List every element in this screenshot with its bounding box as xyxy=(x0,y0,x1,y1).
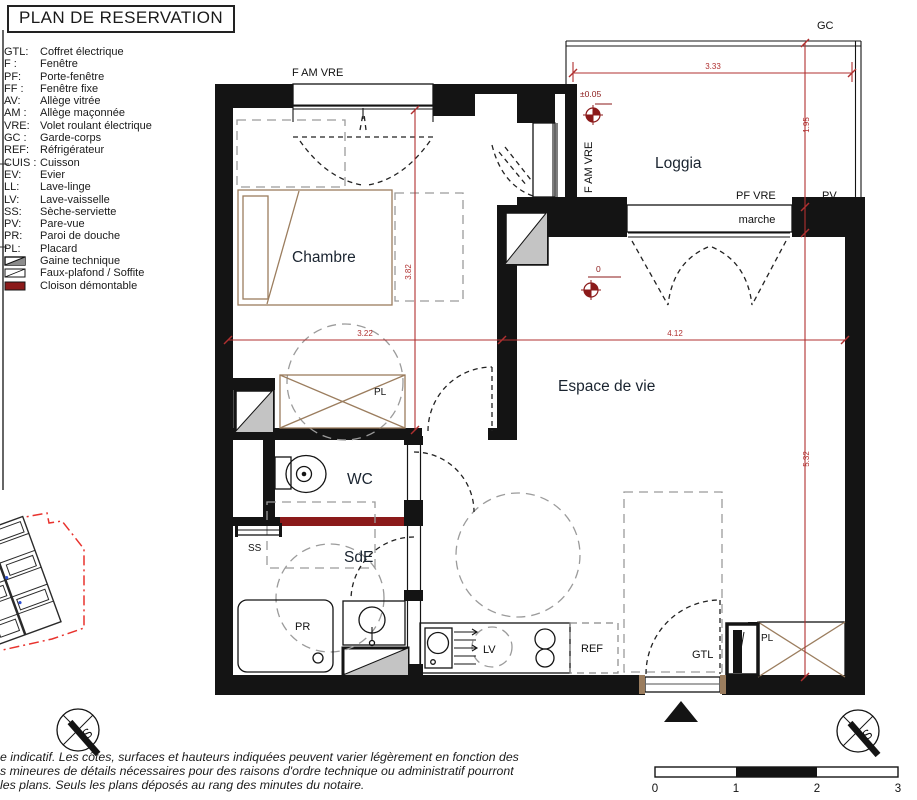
dim-382: 3.82 xyxy=(404,264,413,280)
label-ref: REF xyxy=(581,643,603,655)
legend-symbol-gaine: Gaine technique xyxy=(4,255,152,267)
label-pv: PV xyxy=(822,190,837,202)
legend-item: SS:Sèche-serviette xyxy=(4,206,152,218)
disclaimer-line: s mineures de détails nécessaires pour d… xyxy=(0,765,470,779)
room-label-chambre: Chambre xyxy=(292,249,356,266)
gtl-box xyxy=(727,624,758,675)
towel-dryer xyxy=(235,523,282,537)
entrance-door xyxy=(639,675,726,694)
dim-195: 1.95 xyxy=(802,117,811,133)
label-f-am-vre-side: F AM VRE xyxy=(583,142,595,193)
legend-item: PR:Paroi de douche xyxy=(4,230,152,242)
site-plan xyxy=(0,513,84,651)
gaine-technique-espace xyxy=(505,212,547,264)
dim-532: 5.32 xyxy=(802,451,811,467)
page-title: PLAN DE RESERVATION xyxy=(7,5,235,33)
compass-left: S xyxy=(57,709,99,754)
label-pl-entree: PL xyxy=(761,633,774,644)
scale-tick-2: 2 xyxy=(814,783,820,795)
svg-text:0: 0 xyxy=(596,264,601,274)
dim-322: 3.22 xyxy=(357,329,373,338)
gaine-technique-wc xyxy=(235,390,273,432)
legend-item: PV:Pare-vue xyxy=(4,218,152,230)
label-ss: SS xyxy=(248,543,262,554)
label-gc: GC xyxy=(817,20,834,32)
legend-item: FF :Fenêtre fixe xyxy=(4,83,152,95)
cloison-demontable-swatch xyxy=(4,281,26,291)
disclaimer-line: les plans. Seuls les plans déposés au ra… xyxy=(0,779,470,793)
shower xyxy=(238,600,333,672)
scale-bar: 0 1 2 3 xyxy=(652,767,901,795)
legend-item: F :Fenêtre xyxy=(4,58,152,70)
legend: GTL:Coffret électrique F :Fenêtre PF:Por… xyxy=(4,46,152,292)
scale-tick-0: 0 xyxy=(652,783,658,795)
floor-plan-sheet: 3.33 1.95 3.82 3.22 4.12 5.32 ±0.05 0 xyxy=(0,0,917,800)
clearance-dashes xyxy=(237,120,722,672)
room-label-espace: Espace de vie xyxy=(558,378,655,395)
dim-333: 3.33 xyxy=(705,62,721,71)
label-pl-chambre: PL xyxy=(374,387,387,398)
label-pr: PR xyxy=(295,621,310,633)
label-f-am-vre-top: F AM VRE xyxy=(292,67,343,79)
legend-symbol-cloison: Cloison démontable xyxy=(4,280,152,292)
legend-item: REF:Réfrigérateur xyxy=(4,144,152,156)
label-pf-vre: PF VRE xyxy=(736,190,776,202)
toilet xyxy=(275,456,326,493)
room-label-loggia: Loggia xyxy=(655,155,702,172)
window-chambre-top xyxy=(293,84,433,122)
dim-412: 4.12 xyxy=(667,329,683,338)
legend-symbol-soffite: Faux-plafond / Soffite xyxy=(4,267,152,279)
cloison-demontable xyxy=(280,517,408,526)
legend-item: AM :Allège maçonnée xyxy=(4,107,152,119)
gaine-technique-sde xyxy=(343,648,408,675)
legend-item: VRE:Volet roulant électrique xyxy=(4,120,152,132)
entrance-arrow xyxy=(664,701,698,722)
closet-chambre xyxy=(280,375,405,428)
legend-item: EV:Evier xyxy=(4,169,152,181)
legend-item: LL:Lave-linge xyxy=(4,181,152,193)
label-lv: LV xyxy=(483,644,496,656)
room-label-wc: WC xyxy=(347,471,373,488)
compass-right: S xyxy=(837,710,879,755)
disclaimer-line: e indicatif. Les côtes, surfaces et haut… xyxy=(0,751,470,765)
window-chambre-loggia xyxy=(533,123,557,197)
scale-tick-1: 1 xyxy=(733,783,739,795)
legend-item: GC :Garde-corps xyxy=(4,132,152,144)
soffite-swatch xyxy=(4,268,26,278)
gaine-technique-swatch xyxy=(4,256,26,266)
label-gtl: GTL xyxy=(692,649,713,661)
legend-item: PL:Placard xyxy=(4,243,152,255)
legend-item: PF:Porte-fenêtre xyxy=(4,71,152,83)
label-marche: marche xyxy=(739,214,776,226)
closet-entree xyxy=(758,622,845,677)
level-marker-loggia: ±0.05 xyxy=(580,89,612,125)
level-marker-espace: 0 xyxy=(581,264,621,300)
washbasin xyxy=(343,601,405,646)
scale-tick-3: 3 xyxy=(895,783,901,795)
legend-item: LV:Lave-vaisselle xyxy=(4,194,152,206)
legend-item: CUIS :Cuisson xyxy=(4,157,152,169)
svg-text:±0.05: ±0.05 xyxy=(580,89,601,99)
legend-item: GTL:Coffret électrique xyxy=(4,46,152,58)
legend-item: AV:Allège vitrée xyxy=(4,95,152,107)
bed xyxy=(238,190,392,305)
disclaimer-text: e indicatif. Les côtes, surfaces et haut… xyxy=(0,751,470,792)
room-label-sde: SdE xyxy=(344,549,373,566)
